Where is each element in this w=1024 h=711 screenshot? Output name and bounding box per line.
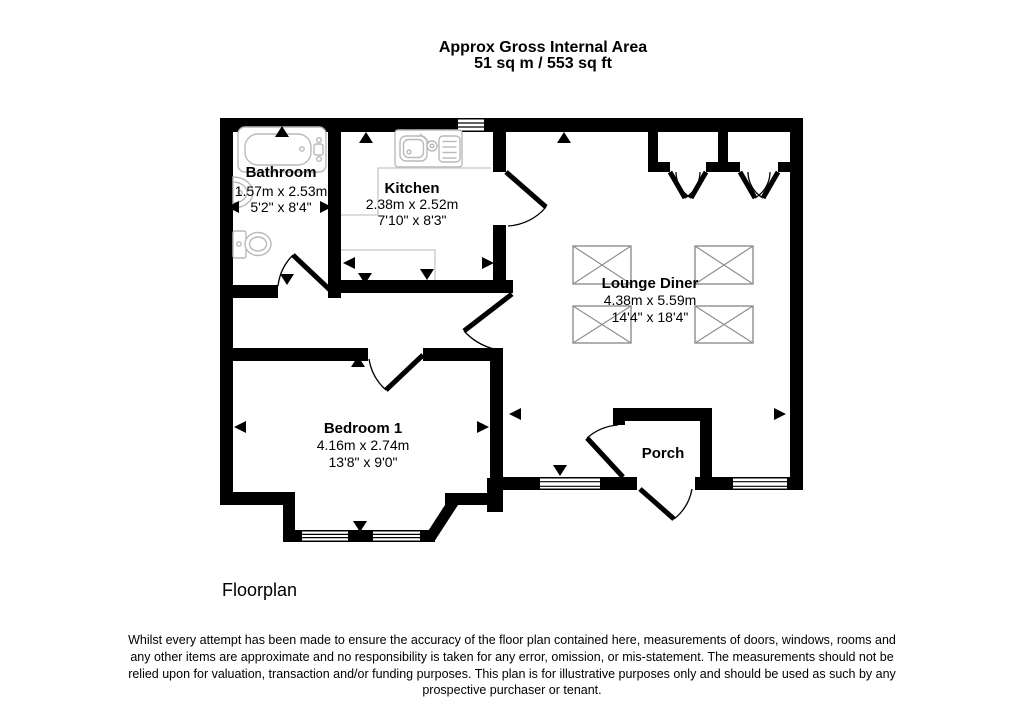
wall-bay-left [283,492,295,534]
bay-window-left [302,532,348,541]
lounge-label: Lounge Diner [602,275,699,292]
front-door-opening [637,476,695,491]
kitchen-dim-metric: 2.38m x 2.52m [366,196,459,212]
kitchen-arrow-up [359,132,373,143]
wall-bedroom-bottom-right [445,493,487,505]
french-doors-left [670,172,706,198]
wall-bedroom-top-right [423,348,490,361]
bathroom-label: Bathroom [246,164,317,181]
wall-kitchen-lounge-lower [493,225,506,280]
wall-flange-1a [658,162,670,172]
kitchen-counter-bottom [341,250,435,280]
kitchen-arrow-left [343,257,355,269]
disclaimer-line3: relied upon for valuation, transaction a… [128,667,896,681]
disclaimer-line1: Whilst every attempt has been made to en… [128,633,896,647]
lounge-window-right [733,479,787,489]
wall-lounge-stub-1 [648,132,658,172]
bathroom-dim-imperial: 5'2" x 8'4" [250,199,311,215]
wall-porch-left-stub [613,408,625,425]
bathroom-dim-metric: 1.57m x 2.53m [235,183,328,199]
header-line2: 51 sq m / 553 sq ft [474,55,613,72]
lounge-dim-metric: 4.38m x 5.59m [604,292,697,308]
wall-flange-1b [706,162,718,172]
porch-inner-door [587,425,623,477]
skylight [695,246,753,284]
bedroom-label: Bedroom 1 [324,420,402,437]
wall-bedroom-top-left [233,348,368,361]
front-door [640,489,692,519]
floorplan-caption: Floorplan [222,580,297,600]
bedroom-dim-imperial: 13'8" x 9'0" [329,454,398,470]
skylight [695,306,753,343]
wall-bathroom-bottom [233,285,278,298]
wall-right [790,118,803,490]
wall-bay-right-diagonal [421,505,458,542]
wall-kitchen-bottom [341,280,513,293]
lounge-arrow-down [553,465,567,476]
room-labels: Bathroom 1.57m x 2.53m 5'2" x 8'4" Kitch… [235,164,699,470]
lounge-arrow-right [774,408,786,420]
disclaimer-line2: any other items are approximate and no r… [130,650,893,664]
kitchen-door [506,172,546,226]
lounge-arrow-left [509,408,521,420]
floorplan-page: Approx Gross Internal Area 51 sq m / 553… [0,0,1024,711]
kitchen-arrow-down [420,269,434,280]
disclaimer-line4: prospective purchaser or tenant. [422,683,601,697]
lounge-arrow-up [557,132,571,143]
lounge-window-left [540,479,600,489]
wall-porch-right [700,408,712,480]
header-line1: Approx Gross Internal Area [439,39,647,56]
bay-window-right [373,532,420,541]
kitchen-sink [395,130,462,167]
kitchen-label: Kitchen [384,180,439,197]
wall-bedroom-right [490,348,503,493]
porch-label: Porch [642,445,685,462]
wall-bathroom-kitchen-divider [328,132,341,298]
french-doors-right [740,172,778,198]
toilet [233,231,271,258]
kitchen-window [458,120,484,131]
wall-kitchen-lounge-upper [493,132,506,172]
lounge-dim-imperial: 14'4" x 18'4" [612,309,689,325]
bathroom-door [278,255,330,290]
floorplan-svg: Approx Gross Internal Area 51 sq m / 553… [0,0,1024,711]
bathroom-arrow-down [280,274,294,285]
wall-flange-2b [778,162,790,172]
bedroom-dim-metric: 4.16m x 2.74m [317,437,410,453]
wall-left [220,118,233,505]
hallway-door [464,294,512,349]
kitchen-arrow-right [482,257,494,269]
bedroom-door [369,355,423,390]
wall-lounge-stub-2 [718,132,728,172]
disclaimer: Whilst every attempt has been made to en… [128,633,896,697]
bedroom-arrow-left [234,421,246,433]
wall-flange-2a [728,162,740,172]
kitchen-dim-imperial: 7'10" x 8'3" [378,212,447,228]
bedroom-arrow-right [477,421,489,433]
wall-porch-top [613,408,712,421]
